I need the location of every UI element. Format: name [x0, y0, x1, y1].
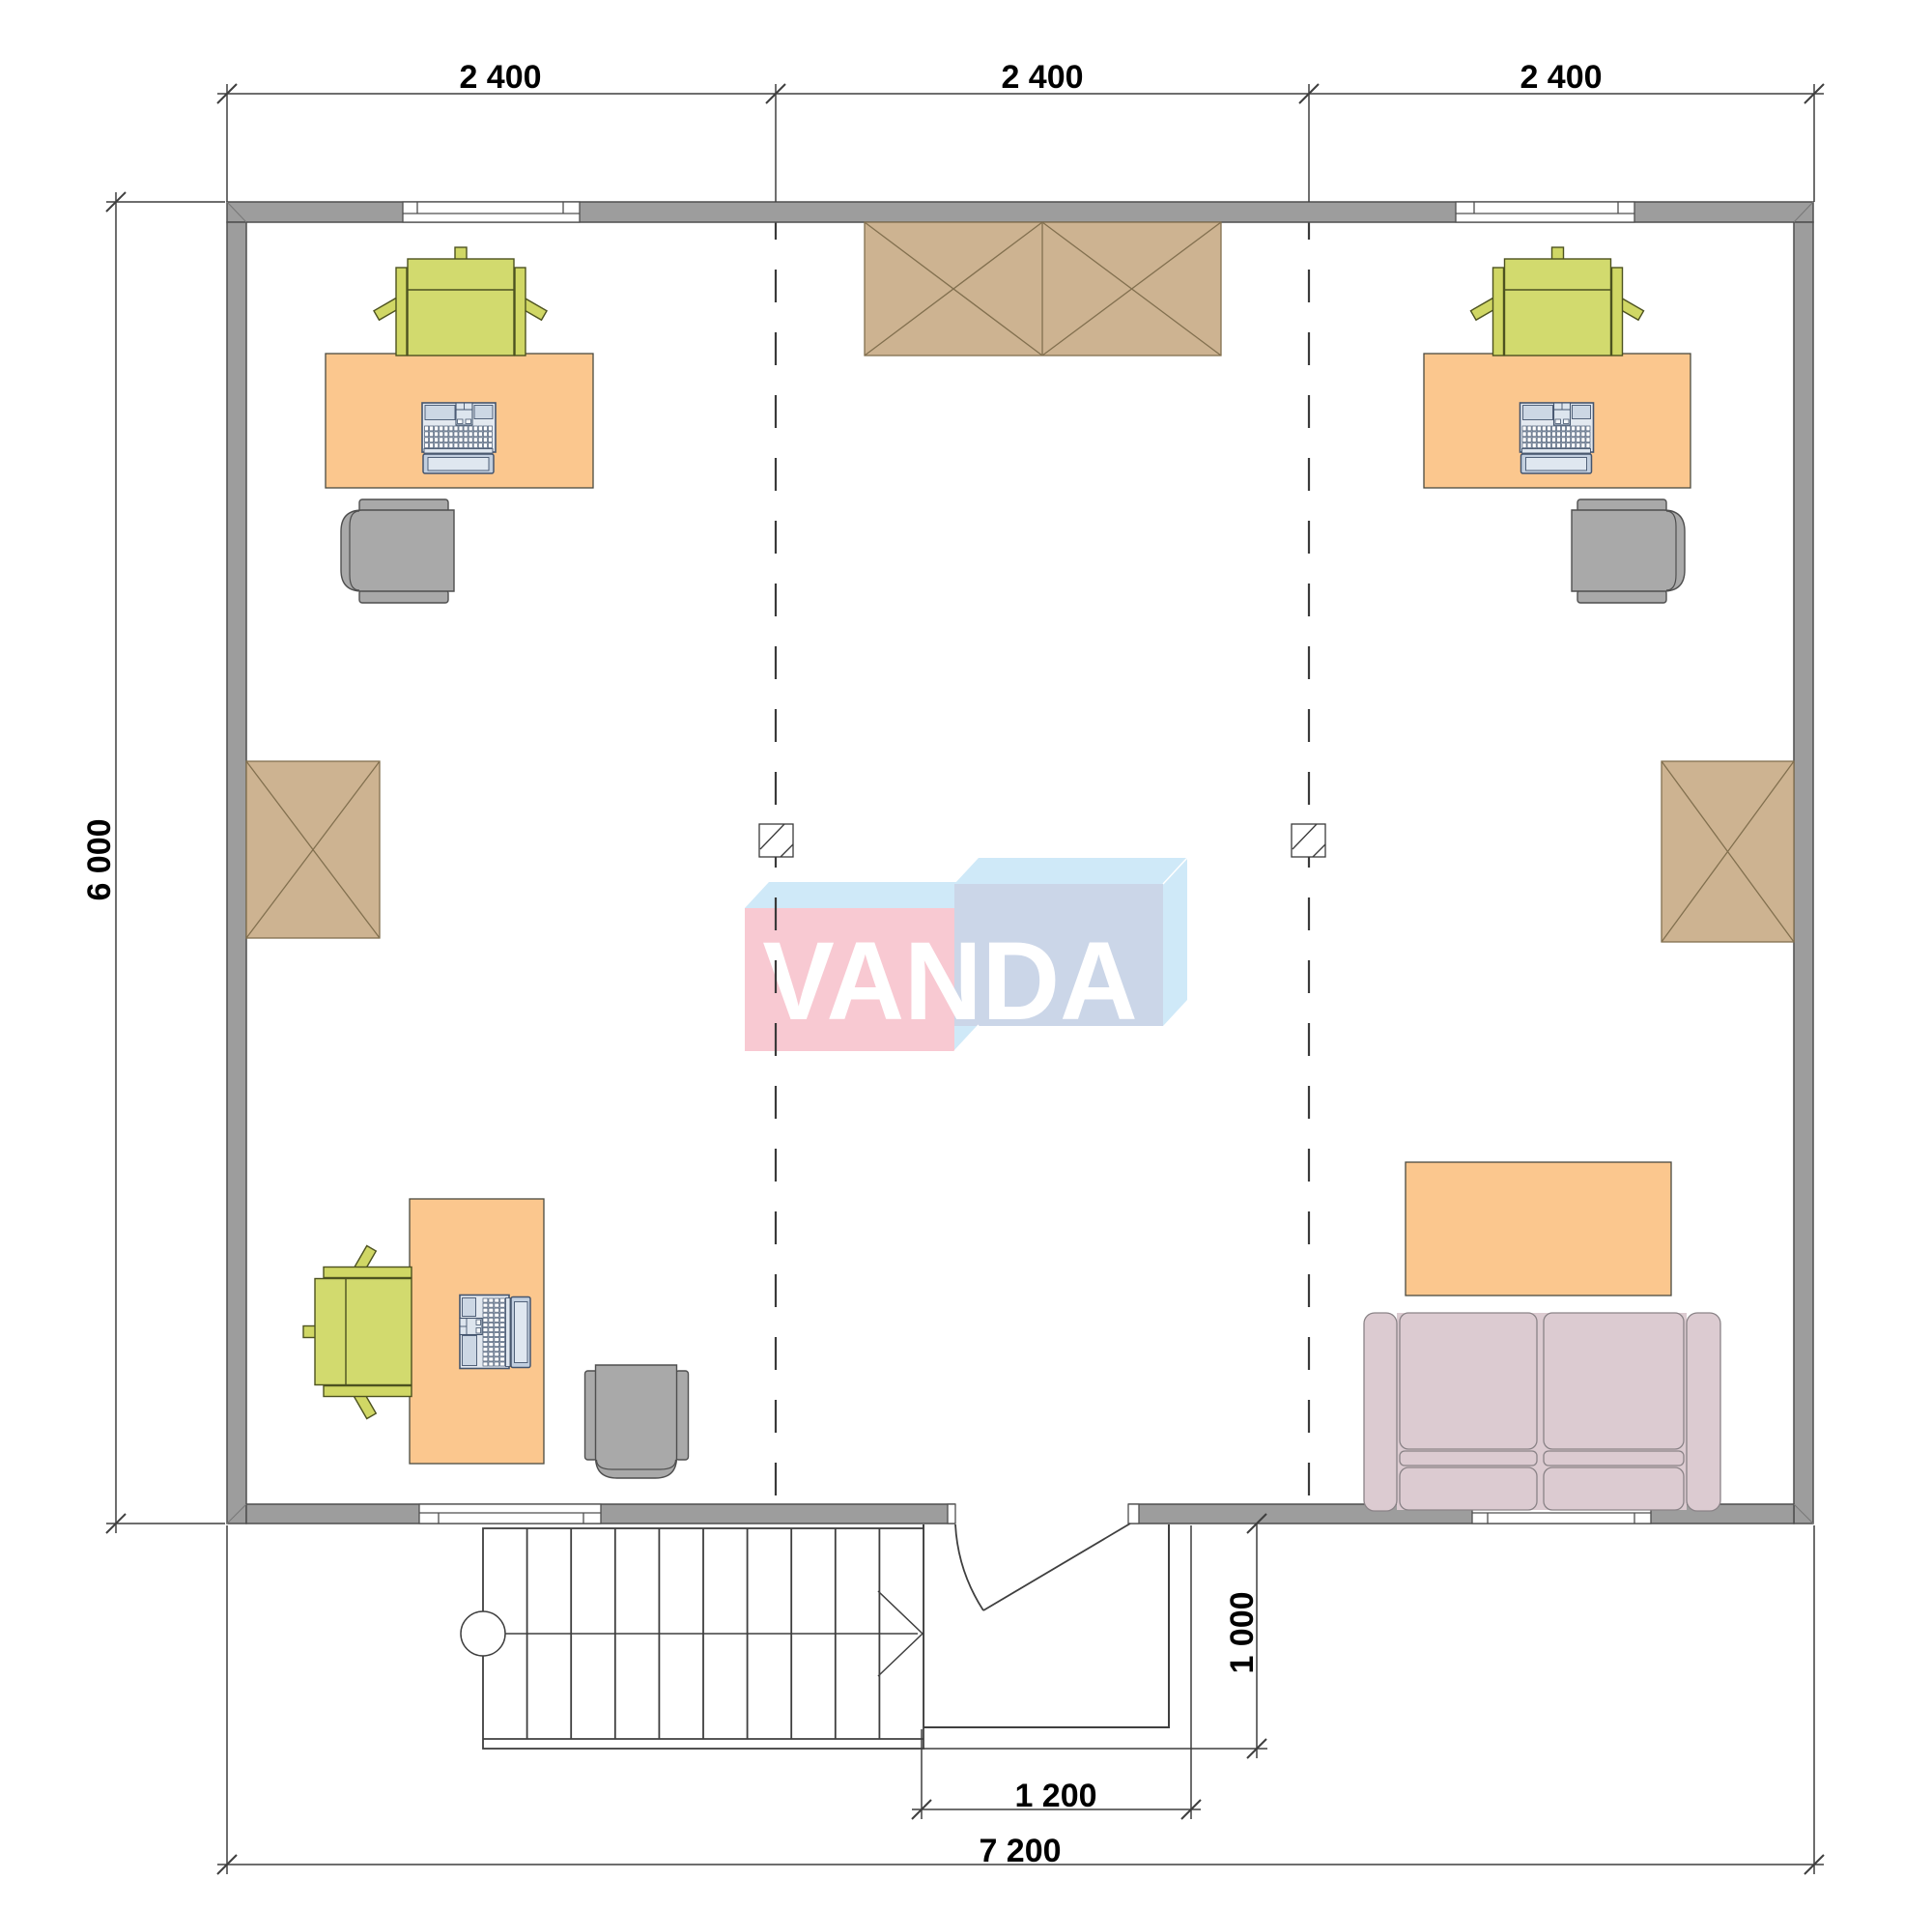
- svg-text:VANDA: VANDA: [762, 919, 1137, 1043]
- svg-text:7 200: 7 200: [979, 1833, 1061, 1869]
- svg-text:2 400: 2 400: [1520, 59, 1602, 96]
- svg-text:2 400: 2 400: [1001, 59, 1083, 96]
- svg-text:6 000: 6 000: [81, 818, 118, 900]
- svg-text:2 400: 2 400: [459, 59, 541, 96]
- svg-text:1 000: 1 000: [1224, 1591, 1261, 1673]
- svg-text:1 200: 1 200: [1014, 1778, 1096, 1814]
